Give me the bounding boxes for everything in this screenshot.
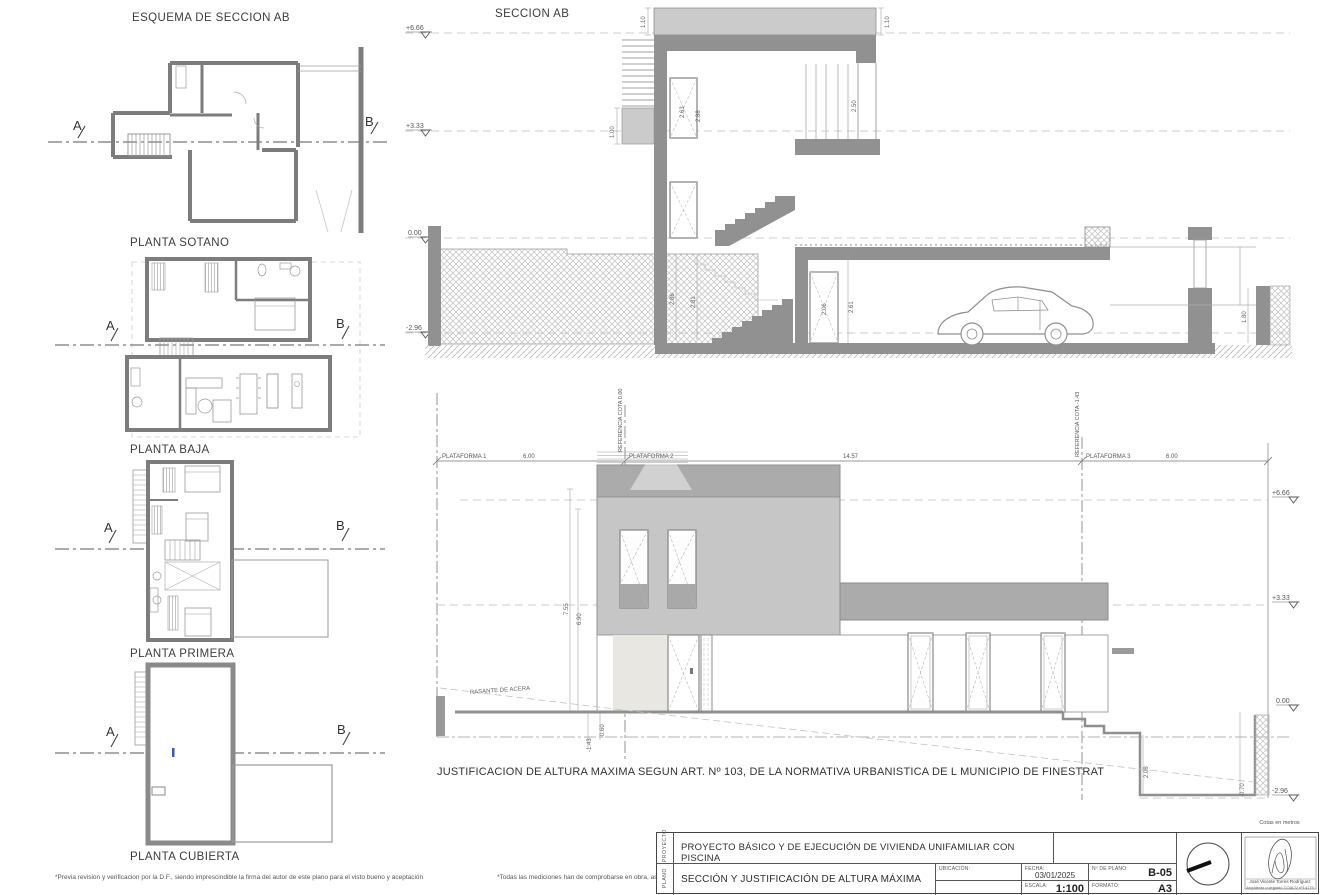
plan2-marker-b: B [336,316,345,331]
elevation-upper-window-1 [620,530,648,608]
roof-stair [622,40,654,106]
reference-cota-labels: REFERENCIA COTA 0.00 REFERENCIA COTA -1.… [618,389,1081,457]
svg-text:2.88: 2.88 [696,110,702,122]
svg-text:-1.43: -1.43 [587,738,593,752]
svg-text:6.00: 6.00 [1166,454,1178,460]
svg-text:-2.96: -2.96 [406,325,422,332]
svg-text:7.55: 7.55 [564,603,570,615]
svg-text:-2.96: -2.96 [1272,788,1288,795]
elevation-drawing: PLATAFORMA 1 6.00 PLATAFORMA 2 14.57 PLA… [433,389,1300,801]
pit-outline [1063,712,1255,795]
elevation-wing-windows [908,633,1065,712]
svg-text:2.50: 2.50 [852,100,858,112]
plan-cubierta-drawing: A B [55,665,385,843]
author-name: José Vicente Torres Rodríguez [1244,879,1316,884]
plan-label-cubierta: PLANTA CUBIERTA [130,851,240,863]
svg-text:+3.33: +3.33 [406,123,424,130]
svg-text:-0.60: -0.60 [600,724,606,738]
svg-text:+3.33: +3.33 [1272,595,1290,602]
svg-text:2.61: 2.61 [849,301,855,313]
footnote-left: *Previa revision y verificacion por la D… [55,874,423,881]
svg-text:-0.70: -0.70 [1240,783,1246,797]
drawing-sheet: A B A B A B [0,0,1320,895]
elevation-level-marks: +6.66 +3.33 0.00 -2.96 [1272,490,1300,801]
svg-text:+6.66: +6.66 [1272,490,1290,497]
title-block: PROYECTO PLANO PROYECTO BÁSICO Y DE EJEC… [656,832,1319,894]
plan1-marker-b: B [365,114,374,129]
car-illustration [938,287,1093,345]
blue-reference-tick [172,748,175,757]
north-compass-icon [1187,843,1229,885]
svg-text:6.00: 6.00 [523,454,535,460]
svg-text:14.57: 14.57 [843,454,859,460]
svg-text:1.80: 1.80 [1242,311,1248,323]
plan-sotano-drawing: A B [48,47,390,233]
svg-text:1.10: 1.10 [641,16,647,28]
svg-text:2.63: 2.63 [680,106,686,118]
elevation-caption: JUSTIFICACION DE ALTURA MAXIMA SEGUN ART… [437,766,1104,778]
earth-hatch-left [440,249,758,344]
plan-label-baja: PLANTA BAJA [130,444,210,456]
svg-text:6.90: 6.90 [577,613,583,625]
svg-text:0.00: 0.00 [408,230,422,237]
section-ab-drawing: +6.66 +3.33 0.00 -2.96 [405,8,1292,358]
plan2-marker-a: A [106,318,115,333]
section-title: SECCION AB [495,8,569,20]
plan3-marker-b: B [336,518,345,533]
svg-text:PLATAFORMA 1: PLATAFORMA 1 [442,454,487,460]
titleblock-graphics [657,833,1320,895]
author-credentials: Arquitecto colegiado COACV nº14179 [1244,885,1316,890]
svg-text:PLATAFORMA 3: PLATAFORMA 3 [1086,454,1131,460]
section-window-lower [670,182,697,238]
plan-label-primera: PLANTA PRIMERA [130,648,234,660]
svg-text:REFERENCIA COTA 0.00: REFERENCIA COTA 0.00 [618,389,624,452]
plan-primera-drawing: A B [55,462,385,640]
svg-text:1.10: 1.10 [885,16,891,28]
stair-flight-upper [715,196,795,246]
plans-column-title: ESQUEMA DE SECCION AB [132,12,290,24]
elevation-upper-window-2 [668,530,696,608]
rasante-label: RASANTE DE ACERA [470,686,531,696]
svg-text:+6.66: +6.66 [406,25,424,32]
svg-text:2.08: 2.08 [1144,766,1150,778]
units-note: Cotas en metros [1240,820,1319,826]
elevation-entry-door [668,635,712,712]
plan3-marker-a: A [104,520,113,535]
platform-labels: PLATAFORMA 1 6.00 PLATAFORMA 2 14.57 PLA… [442,454,1178,460]
plan4-marker-a: A [106,724,115,739]
plan-baja-drawing: A B [55,259,385,437]
svg-text:1.00: 1.00 [610,126,616,138]
plan-label-sotano: PLANTA SOTANO [130,237,229,249]
plan4-marker-b: B [337,722,346,737]
svg-text:0.00: 0.00 [1276,698,1290,705]
plan1-marker-a: A [73,118,82,133]
svg-text:2.81: 2.81 [691,296,697,308]
svg-text:REFERENCIA COTA -1.43: REFERENCIA COTA -1.43 [1075,392,1081,457]
svg-text:2.86: 2.86 [670,293,676,305]
svg-text:2.06: 2.06 [822,303,828,315]
